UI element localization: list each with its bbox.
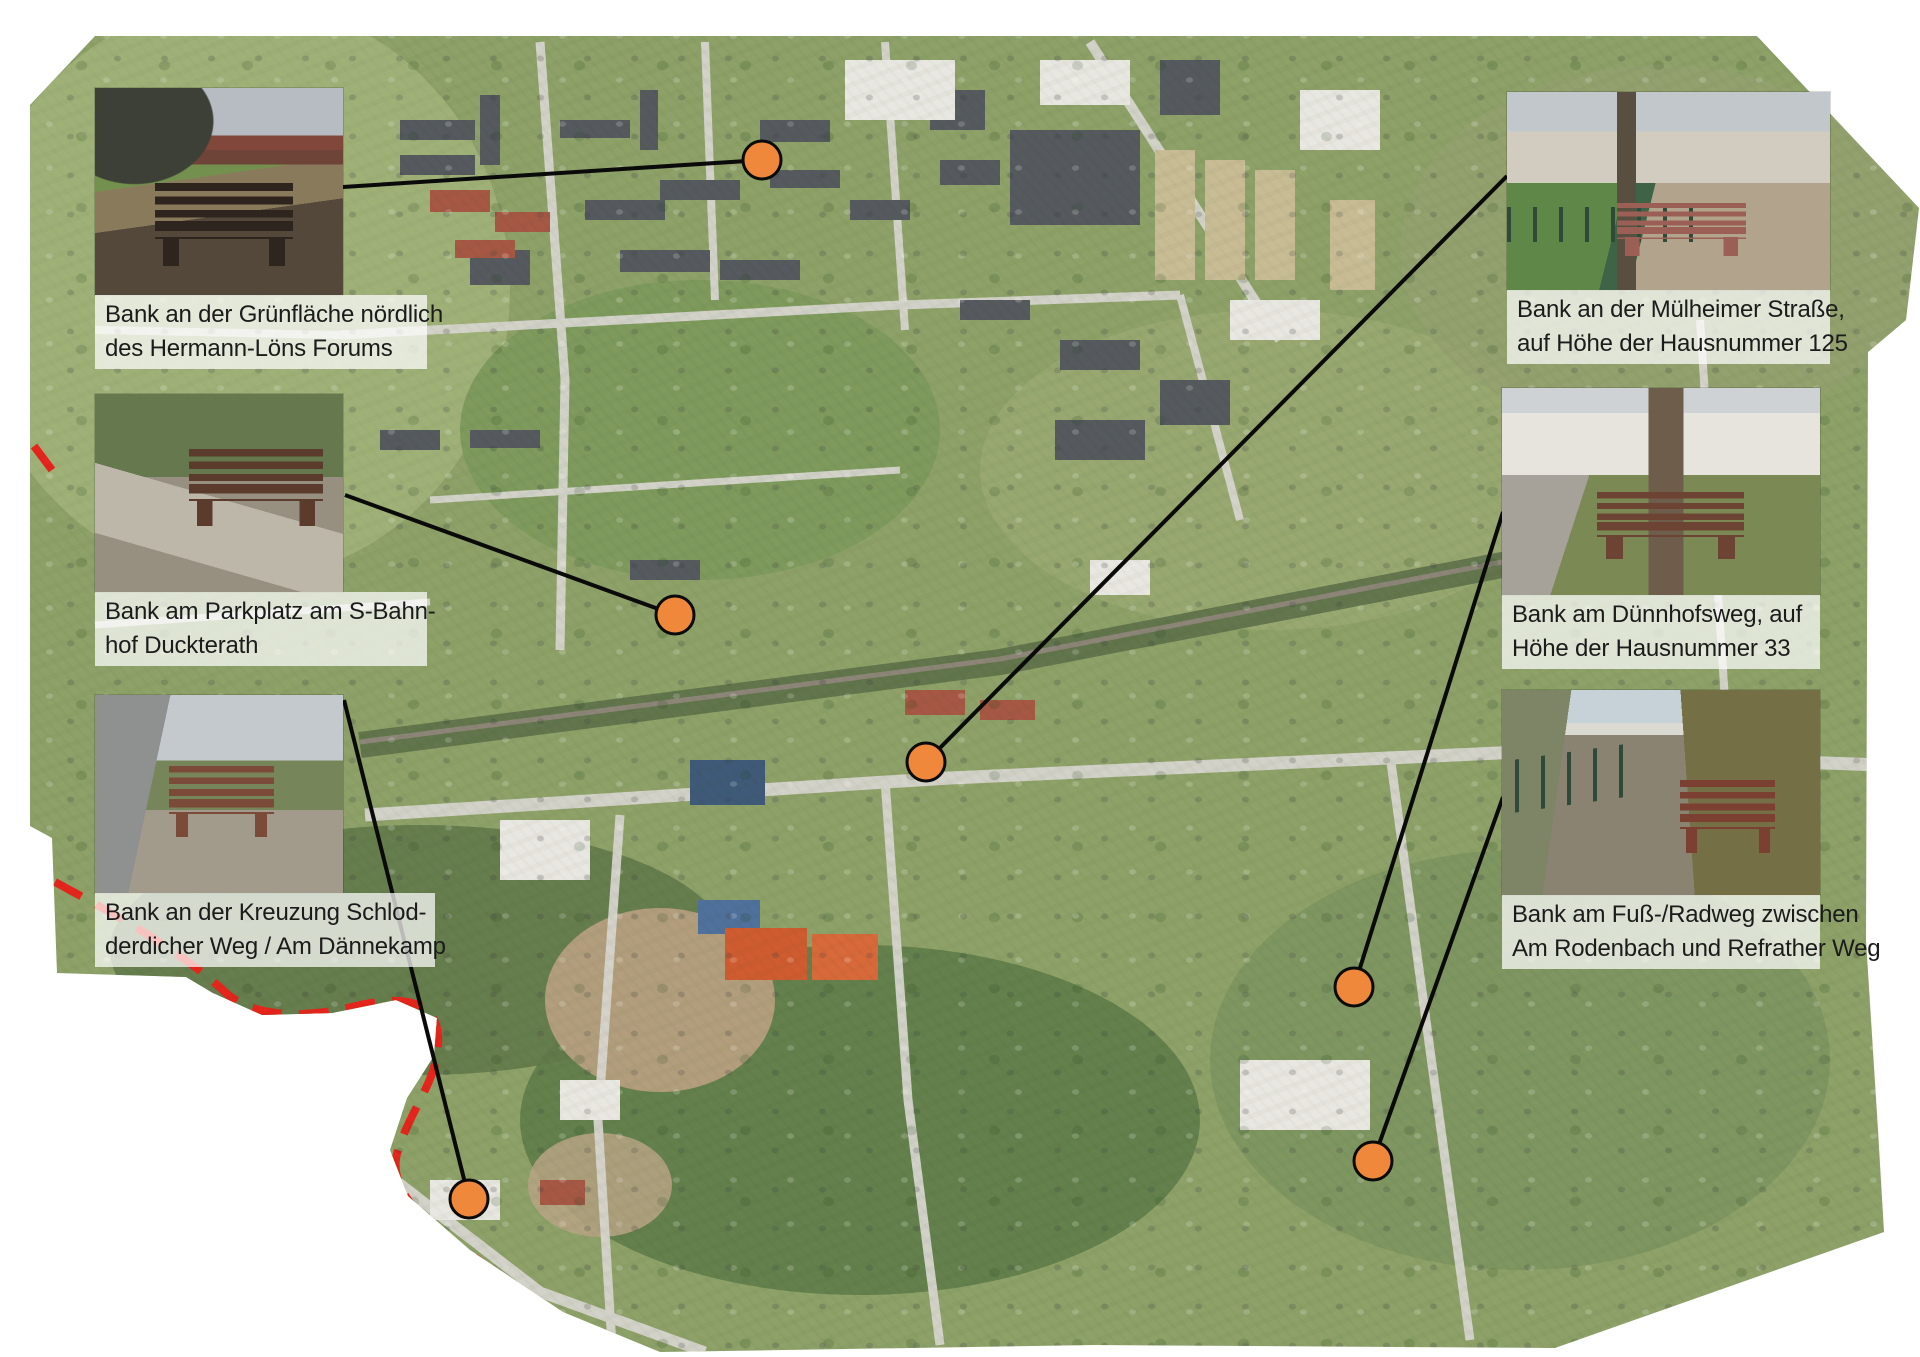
bench-silhouette — [1617, 203, 1746, 239]
caption-line: Bank an der Grünfläche nördlich — [105, 298, 417, 332]
bench-silhouette — [169, 766, 273, 814]
bench-caption-parkplatz: Bank am Parkplatz am S-Bahn- hof Duckter… — [95, 592, 427, 666]
bench-photo-gruenflaeche — [95, 88, 343, 295]
bench-silhouette — [155, 183, 294, 239]
bench-photo-kreuzung — [95, 695, 343, 893]
fence — [1515, 744, 1623, 812]
caption-line: Bank am Fuß-/Radweg zwischen — [1512, 898, 1810, 932]
caption-line: des Hermann-Löns Forums — [105, 332, 417, 366]
bench-silhouette — [1597, 492, 1743, 538]
caption-line: Bank am Dünnhofsweg, auf — [1512, 598, 1810, 632]
caption-line: Bank am Parkplatz am S-Bahn- — [105, 595, 417, 629]
bench-photo-muelheimer — [1507, 92, 1830, 290]
bench-photo-duennhofsweg — [1502, 388, 1820, 595]
caption-line: auf Höhe der Hausnummer 125 — [1517, 327, 1820, 361]
bench-caption-duennhofsweg: Bank am Dünnhofsweg, auf Höhe der Hausnu… — [1502, 595, 1820, 669]
bench-map-poster: Bank an der Grünfläche nördlich des Herm… — [0, 0, 1920, 1357]
caption-line: Bank an der Kreuzung Schlod- — [105, 896, 425, 930]
bench-caption-radweg: Bank am Fuß-/Radweg zwischen Am Rodenbac… — [1502, 895, 1820, 969]
bench-photo-parkplatz — [95, 394, 343, 592]
bench-caption-gruenflaeche: Bank an der Grünfläche nördlich des Herm… — [95, 295, 427, 369]
bench-silhouette — [1680, 780, 1775, 829]
bench-silhouette — [189, 449, 323, 500]
bench-caption-kreuzung: Bank an der Kreuzung Schlod- derdicher W… — [95, 893, 435, 967]
caption-line: Bank an der Mülheimer Straße, — [1517, 293, 1820, 327]
bench-photo-radweg — [1502, 690, 1820, 895]
caption-line: Am Rodenbach und Refrather Weg — [1512, 932, 1810, 966]
caption-line: hof Duckterath — [105, 629, 417, 663]
caption-line: derdicher Weg / Am Dännekamp — [105, 930, 425, 964]
caption-line: Höhe der Hausnummer 33 — [1512, 632, 1810, 666]
bench-caption-muelheimer: Bank an der Mülheimer Straße, auf Höhe d… — [1507, 290, 1830, 364]
